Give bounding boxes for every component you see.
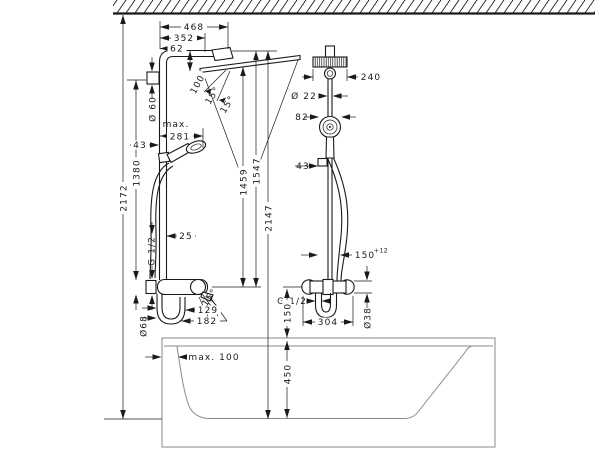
dim-handshower-diameter: 82	[295, 113, 309, 123]
dim-loop-diameter: Ø68	[139, 315, 150, 337]
right-hose-loop	[316, 293, 337, 318]
dim-height-head: 1547	[253, 157, 263, 184]
dim-pipe-diameter: Ø 22	[291, 91, 317, 102]
left-shower-arm	[160, 51, 216, 281]
dim-handshower-max-label: max.	[163, 120, 190, 130]
dim-holder-offset-right: 43	[296, 162, 310, 172]
dim-spray-angle-2: 15°	[219, 94, 238, 116]
dim-pipe-offset: 25	[179, 232, 193, 242]
dim-head-width: 240	[361, 73, 381, 83]
dim-spout-reach-outer: 182	[197, 317, 217, 327]
right-shower-hose	[328, 158, 348, 281]
right-hand-shower	[320, 117, 341, 159]
dim-handshower-max-value: 281	[170, 132, 190, 142]
wall-escutcheon	[147, 72, 159, 84]
dim-valve-width: 304	[318, 318, 338, 328]
dim-valve-diameter: Ø38	[363, 307, 374, 329]
dim-bar-height: 1380	[133, 159, 143, 186]
dim-projection-arm: 352	[174, 34, 194, 44]
spray-cone-lines	[203, 60, 298, 180]
right-head-stub	[326, 46, 335, 57]
dim-escutcheon-diameter: Ø 60	[148, 96, 159, 122]
head-mount	[212, 48, 233, 61]
right-valve	[302, 280, 354, 295]
dim-connection-tolerance: +12	[374, 248, 388, 255]
dim-height-top: 2147	[265, 204, 275, 231]
drawing-canvas: 468 352 62 100 15° 15° Ø 60 max. 281 43 …	[0, 0, 610, 450]
dim-spout-reach-inner: 129	[198, 306, 218, 316]
right-overhead-shower	[313, 57, 347, 67]
right-holder	[318, 159, 327, 167]
dim-rim-to-axis-max: max. 100	[188, 353, 239, 363]
dim-tub-depth: 450	[284, 364, 294, 384]
left-hose-loop	[157, 294, 185, 324]
dim-arm-drop: 100	[189, 73, 207, 96]
head-hanger-ring	[325, 68, 336, 79]
dim-height-spray: 1459	[240, 168, 250, 195]
dim-offset: 62	[170, 45, 184, 55]
left-shower-unit	[146, 48, 300, 325]
dim-holder-offset-left: 43	[133, 141, 147, 151]
dim-projection-total: 468	[184, 23, 204, 33]
dim-valve-height-above-rim: 150	[284, 303, 294, 323]
installation-drawing: 468 352 62 100 15° 15° Ø 60 max. 281 43 …	[0, 0, 610, 450]
right-shower-unit	[302, 46, 354, 318]
dim-connection-thread-left: G 1/2	[148, 236, 158, 266]
dim-connection-distance: 150	[355, 251, 375, 261]
dim-spray-angle-1: 15°	[204, 85, 223, 107]
dim-overall-height: 2172	[120, 184, 130, 211]
ceiling-hatch	[113, 0, 595, 14]
